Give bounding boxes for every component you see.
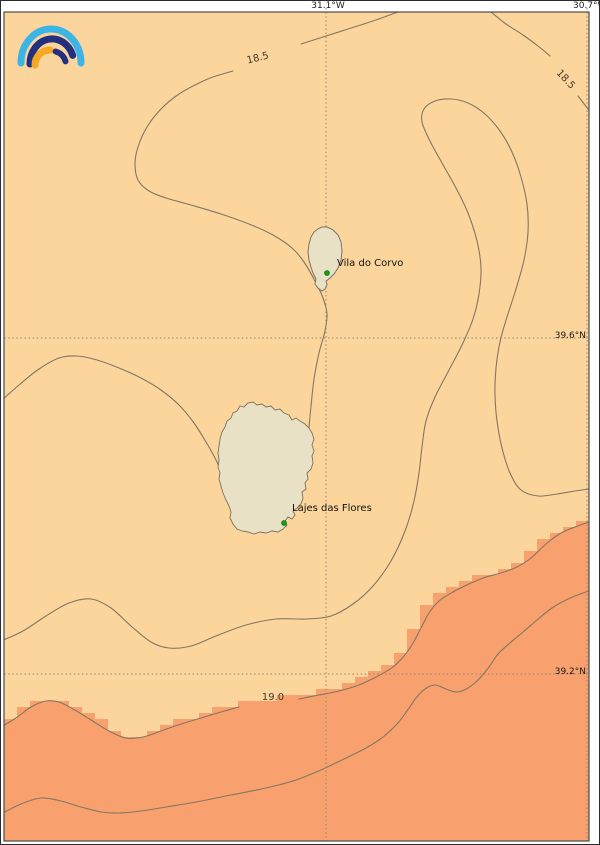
place-label-lajes-das-flores: Lajes das Flores bbox=[292, 504, 372, 514]
lat-label-39-6n: 39.6°N bbox=[501, 332, 586, 341]
lajes-das-flores-marker bbox=[282, 521, 287, 526]
contour-label-19-0: 19.0 bbox=[262, 693, 284, 703]
lon-label-31-1w: 31.1°W bbox=[311, 2, 344, 11]
place-label-vila-do-corvo: Vila do Corvo bbox=[337, 259, 403, 269]
lon-label-30-7w: 30.7°W bbox=[573, 2, 600, 11]
vila-do-corvo-marker bbox=[325, 271, 330, 276]
sst-contour-map bbox=[1, 1, 600, 845]
logo-orange-arc bbox=[35, 50, 50, 65]
lat-label-39-2n: 39.2°N bbox=[501, 668, 586, 677]
ipma-logo bbox=[7, 11, 97, 71]
map-canvas: 31.1°W 30.7°W 39.6°N 39.2°N 18.5 18.5 19… bbox=[0, 0, 600, 845]
logo-inner-arc bbox=[56, 52, 66, 62]
